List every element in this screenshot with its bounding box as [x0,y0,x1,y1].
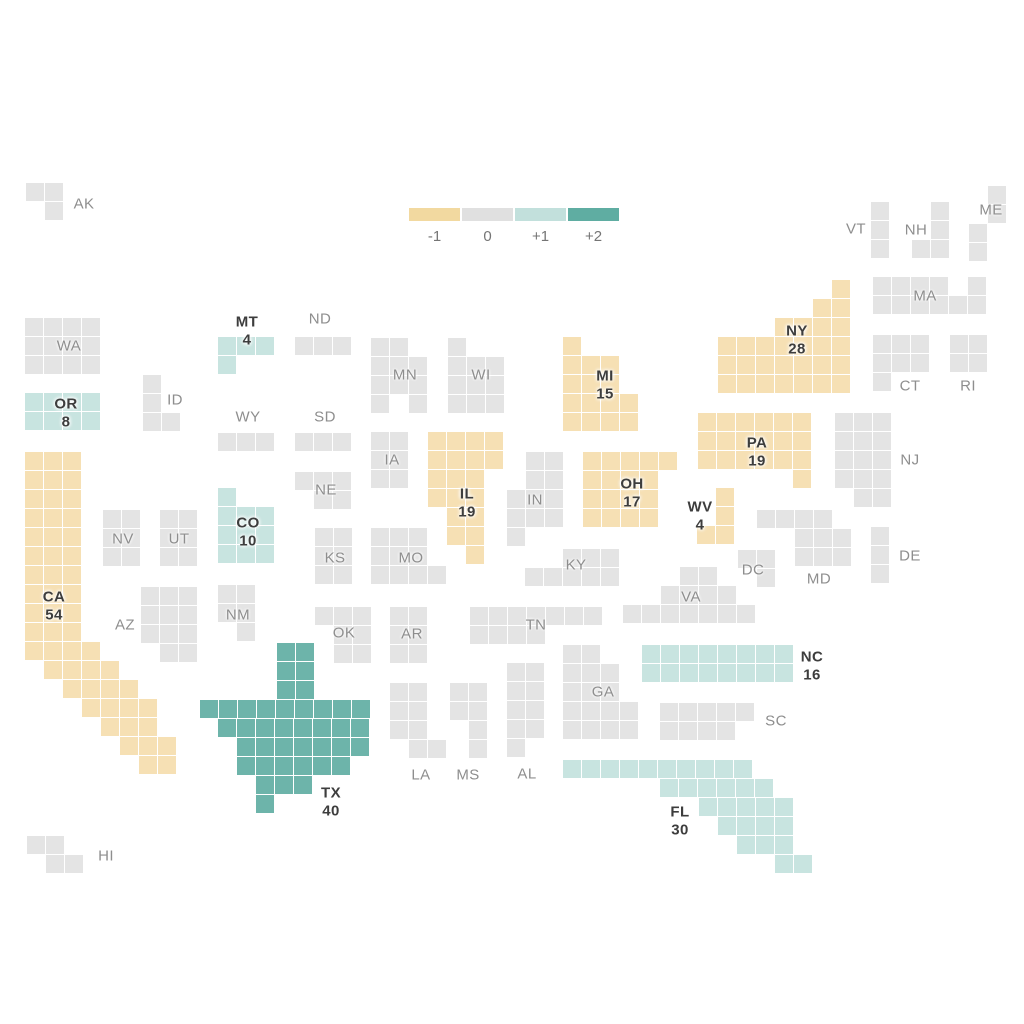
tile-ca[interactable] [44,490,62,508]
tile-oh[interactable] [640,490,658,508]
tile-ny[interactable] [813,337,831,355]
tile-co[interactable] [218,526,236,544]
tile-nc[interactable] [737,664,755,682]
tile-al[interactable] [507,663,525,681]
tile-fl[interactable] [775,836,793,854]
tile-nj[interactable] [873,489,891,507]
tile-id[interactable] [143,394,161,412]
tile-la[interactable] [409,721,427,739]
tile-ny[interactable] [737,375,755,393]
tile-nd[interactable] [295,337,313,355]
tile-in[interactable] [526,471,544,489]
tile-me[interactable] [969,243,987,261]
tile-tx[interactable] [332,738,350,756]
tile-in[interactable] [507,490,525,508]
tile-ny[interactable] [718,375,736,393]
tile-tx[interactable] [313,757,331,775]
tile-sc[interactable] [736,703,754,721]
tile-il[interactable] [466,546,484,564]
tile-ca[interactable] [101,718,119,736]
tile-oh[interactable] [640,452,658,470]
tile-tx[interactable] [332,719,350,737]
tile-wa[interactable] [25,356,43,374]
tile-la[interactable] [428,740,446,758]
tile-nc[interactable] [718,664,736,682]
tile-tn[interactable] [565,607,583,625]
tile-ca[interactable] [120,680,138,698]
tile-az[interactable] [141,606,159,624]
tile-fl[interactable] [696,760,714,778]
tile-co[interactable] [218,507,236,525]
tile-ct[interactable] [892,335,910,353]
tile-ny[interactable] [832,280,850,298]
tile-tx[interactable] [256,795,274,813]
tile-tx[interactable] [277,681,295,699]
tile-nc[interactable] [737,645,755,663]
tile-oh[interactable] [621,452,639,470]
tile-nj[interactable] [835,451,853,469]
tile-hi[interactable] [65,855,83,873]
tile-ca[interactable] [158,756,176,774]
tile-vt[interactable] [871,202,889,220]
tile-tx[interactable] [296,643,314,661]
tile-mn[interactable] [371,338,389,356]
tile-id[interactable] [162,413,180,431]
tile-mn[interactable] [390,338,408,356]
tile-al[interactable] [526,720,544,738]
tile-ny[interactable] [756,356,774,374]
tile-az[interactable] [160,606,178,624]
tile-tx[interactable] [295,700,313,718]
tile-fl[interactable] [756,798,774,816]
tile-nc[interactable] [661,664,679,682]
tile-mo[interactable] [371,528,389,546]
tile-fl[interactable] [620,760,638,778]
tile-wi[interactable] [486,395,504,413]
tile-nc[interactable] [699,664,717,682]
tile-ct[interactable] [911,335,929,353]
tile-mt[interactable] [218,356,236,374]
tile-tx[interactable] [332,757,350,775]
tile-ca[interactable] [44,471,62,489]
tile-az[interactable] [179,606,197,624]
tile-ga[interactable] [620,702,638,720]
tile-in[interactable] [545,509,563,527]
tile-al[interactable] [507,720,525,738]
tile-fl[interactable] [737,798,755,816]
tile-ne[interactable] [295,472,313,490]
tile-ny[interactable] [832,299,850,317]
tile-hi[interactable] [46,855,64,873]
tile-va[interactable] [718,586,736,604]
tile-ca[interactable] [63,585,81,603]
tile-sc[interactable] [679,703,697,721]
tile-ut[interactable] [160,510,178,528]
tile-sd[interactable] [314,433,332,451]
tile-nj[interactable] [873,413,891,431]
tile-fl[interactable] [794,855,812,873]
tile-ca[interactable] [82,699,100,717]
tile-ga[interactable] [601,664,619,682]
tile-pa[interactable] [717,451,735,469]
tile-tx[interactable] [237,738,255,756]
tile-mo[interactable] [409,566,427,584]
tile-ca[interactable] [44,528,62,546]
tile-ma[interactable] [892,296,910,314]
tile-ca[interactable] [63,452,81,470]
tile-ma[interactable] [873,296,891,314]
tile-nv[interactable] [103,510,121,528]
tile-ca[interactable] [139,718,157,736]
tile-md[interactable] [833,529,851,547]
tile-va[interactable] [680,605,698,623]
tile-ca[interactable] [25,490,43,508]
tile-ky[interactable] [525,568,543,586]
tile-tx[interactable] [256,738,274,756]
tile-mt[interactable] [256,337,274,355]
tile-tx[interactable] [333,700,351,718]
tile-nm[interactable] [218,585,236,603]
tile-nj[interactable] [854,451,872,469]
tile-ca[interactable] [120,737,138,755]
tile-il[interactable] [428,451,446,469]
tile-il[interactable] [466,432,484,450]
tile-ny[interactable] [813,356,831,374]
tile-nh[interactable] [931,221,949,239]
tile-co[interactable] [256,545,274,563]
tile-il[interactable] [466,451,484,469]
tile-il[interactable] [466,527,484,545]
tile-al[interactable] [507,701,525,719]
tile-ny[interactable] [718,337,736,355]
tile-ia[interactable] [371,432,389,450]
tile-ut[interactable] [160,548,178,566]
tile-ca[interactable] [25,585,43,603]
tile-wa[interactable] [63,318,81,336]
tile-sc[interactable] [698,703,716,721]
tile-md[interactable] [795,548,813,566]
tile-or[interactable] [25,412,43,430]
tile-ca[interactable] [101,680,119,698]
tile-oh[interactable] [583,509,601,527]
tile-tx[interactable] [237,719,255,737]
tile-fl[interactable] [715,760,733,778]
tile-pa[interactable] [698,451,716,469]
tile-nd[interactable] [333,337,351,355]
tile-ga[interactable] [563,683,581,701]
tile-tn[interactable] [470,607,488,625]
tile-ks[interactable] [315,566,333,584]
tile-fl[interactable] [699,798,717,816]
tile-nj[interactable] [854,432,872,450]
tile-ks[interactable] [334,566,352,584]
tile-vt[interactable] [871,240,889,258]
tile-nc[interactable] [775,664,793,682]
tile-mo[interactable] [390,528,408,546]
tile-nv[interactable] [103,548,121,566]
tile-ca[interactable] [25,623,43,641]
tile-md[interactable] [814,529,832,547]
tile-ar[interactable] [409,645,427,663]
tile-fl[interactable] [582,760,600,778]
tile-tx[interactable] [256,776,274,794]
tile-de[interactable] [871,565,889,583]
tile-ca[interactable] [25,547,43,565]
tile-ca[interactable] [63,661,81,679]
tile-ga[interactable] [582,702,600,720]
tile-nh[interactable] [912,240,930,258]
tile-nc[interactable] [718,645,736,663]
tile-ca[interactable] [63,547,81,565]
tile-ut[interactable] [179,510,197,528]
tile-nm[interactable] [237,623,255,641]
tile-mo[interactable] [409,528,427,546]
tile-ma[interactable] [892,277,910,295]
tile-fl[interactable] [756,836,774,854]
tile-tx[interactable] [313,719,331,737]
tile-al[interactable] [507,682,525,700]
tile-fl[interactable] [755,779,773,797]
tile-tn[interactable] [508,607,526,625]
tile-nj[interactable] [835,432,853,450]
tile-ar[interactable] [409,607,427,625]
tile-tn[interactable] [470,626,488,644]
tile-tn[interactable] [508,626,526,644]
tile-ak[interactable] [26,183,44,201]
tile-tx[interactable] [257,700,275,718]
tile-pa[interactable] [793,413,811,431]
tile-ca[interactable] [44,623,62,641]
tile-sc[interactable] [660,703,678,721]
tile-ct[interactable] [873,335,891,353]
tile-ok[interactable] [315,607,333,625]
tile-fl[interactable] [775,855,793,873]
tile-wa[interactable] [82,318,100,336]
tile-ms[interactable] [469,740,487,758]
tile-fl[interactable] [660,779,678,797]
tile-ca[interactable] [25,471,43,489]
tile-ny[interactable] [794,356,812,374]
tile-ny[interactable] [756,375,774,393]
tile-oh[interactable] [640,509,658,527]
tile-mo[interactable] [371,547,389,565]
tile-az[interactable] [160,587,178,605]
tile-ri[interactable] [950,335,968,353]
tile-ca[interactable] [63,490,81,508]
tile-va[interactable] [642,605,660,623]
tile-mn[interactable] [409,395,427,413]
tile-mn[interactable] [371,376,389,394]
tile-ky[interactable] [601,568,619,586]
tile-ca[interactable] [63,528,81,546]
tile-tx[interactable] [277,662,295,680]
tile-tx[interactable] [275,719,293,737]
tile-ca[interactable] [25,604,43,622]
tile-oh[interactable] [621,509,639,527]
tile-va[interactable] [718,605,736,623]
tile-ny[interactable] [813,299,831,317]
tile-co[interactable] [218,488,236,506]
tile-ms[interactable] [450,683,468,701]
tile-nj[interactable] [873,451,891,469]
tile-fl[interactable] [718,798,736,816]
tile-tx[interactable] [275,757,293,775]
tile-tx[interactable] [294,719,312,737]
tile-md[interactable] [814,548,832,566]
tile-co[interactable] [218,545,236,563]
tile-sc[interactable] [679,722,697,740]
tile-tx[interactable] [275,776,293,794]
tile-nc[interactable] [680,664,698,682]
tile-ny[interactable] [737,337,755,355]
tile-ok[interactable] [353,607,371,625]
tile-ca[interactable] [25,509,43,527]
tile-ma[interactable] [968,277,986,295]
tile-tx[interactable] [275,738,293,756]
tile-md[interactable] [814,510,832,528]
tile-il[interactable] [447,451,465,469]
tile-ca[interactable] [63,509,81,527]
tile-ny[interactable] [832,375,850,393]
tile-ga[interactable] [563,702,581,720]
tile-tx[interactable] [237,757,255,775]
tile-ok[interactable] [334,607,352,625]
tile-fl[interactable] [775,817,793,835]
tile-wi[interactable] [467,395,485,413]
tile-in[interactable] [526,452,544,470]
tile-pa[interactable] [774,413,792,431]
tile-tx[interactable] [200,700,218,718]
tile-nc[interactable] [699,645,717,663]
tile-va[interactable] [680,567,698,585]
tile-ny[interactable] [832,318,850,336]
tile-va[interactable] [699,567,717,585]
tile-pa[interactable] [717,413,735,431]
tile-id[interactable] [143,375,161,393]
tile-va[interactable] [661,605,679,623]
tile-nj[interactable] [835,470,853,488]
tile-tx[interactable] [276,700,294,718]
tile-oh[interactable] [602,471,620,489]
tile-fl[interactable] [718,817,736,835]
tile-wa[interactable] [25,318,43,336]
tile-il[interactable] [447,527,465,545]
tile-ut[interactable] [179,548,197,566]
tile-ga[interactable] [563,721,581,739]
tile-az[interactable] [160,644,178,662]
tile-wy[interactable] [218,433,236,451]
tile-pa[interactable] [698,432,716,450]
tile-mo[interactable] [371,566,389,584]
tile-ny[interactable] [775,375,793,393]
tile-fl[interactable] [775,798,793,816]
tile-mi[interactable] [563,337,581,355]
tile-tx[interactable] [256,719,274,737]
tile-mi[interactable] [601,413,619,431]
tile-tx[interactable] [294,738,312,756]
tile-wa[interactable] [82,356,100,374]
tile-nc[interactable] [642,664,660,682]
tile-ga[interactable] [582,721,600,739]
tile-tx[interactable] [277,643,295,661]
tile-tn[interactable] [489,626,507,644]
tile-ky[interactable] [601,549,619,567]
tile-la[interactable] [390,702,408,720]
tile-ca[interactable] [139,699,157,717]
tile-ca[interactable] [101,699,119,717]
tile-tx[interactable] [296,662,314,680]
tile-in[interactable] [507,528,525,546]
tile-ri[interactable] [950,354,968,372]
tile-wi[interactable] [448,376,466,394]
tile-ct[interactable] [873,373,891,391]
tile-mn[interactable] [371,357,389,375]
tile-pa[interactable] [698,413,716,431]
tile-wa[interactable] [25,337,43,355]
tile-wi[interactable] [448,338,466,356]
tile-ga[interactable] [563,645,581,663]
tile-ca[interactable] [63,471,81,489]
tile-ny[interactable] [756,337,774,355]
tile-sc[interactable] [717,722,735,740]
tile-ct[interactable] [873,354,891,372]
tile-sd[interactable] [333,433,351,451]
tile-wa[interactable] [82,337,100,355]
tile-fl[interactable] [698,779,716,797]
tile-ga[interactable] [601,721,619,739]
tile-ca[interactable] [44,661,62,679]
tile-nc[interactable] [756,664,774,682]
tile-md[interactable] [833,548,851,566]
tile-ca[interactable] [63,566,81,584]
tile-ca[interactable] [139,737,157,755]
tile-tx[interactable] [219,700,237,718]
tile-fl[interactable] [734,760,752,778]
tile-pa[interactable] [755,413,773,431]
tile-id[interactable] [143,413,161,431]
tile-ok[interactable] [353,626,371,644]
tile-or[interactable] [82,393,100,411]
tile-az[interactable] [141,625,159,643]
tile-mo[interactable] [428,566,446,584]
tile-wa[interactable] [63,356,81,374]
tile-wi[interactable] [448,395,466,413]
tile-md[interactable] [795,529,813,547]
tile-wy[interactable] [237,433,255,451]
tile-nv[interactable] [122,548,140,566]
tile-wi[interactable] [448,357,466,375]
tile-ca[interactable] [25,528,43,546]
tile-ca[interactable] [44,452,62,470]
tile-in[interactable] [526,509,544,527]
tile-ak[interactable] [45,202,63,220]
tile-de[interactable] [871,527,889,545]
tile-ca[interactable] [139,756,157,774]
tile-tx[interactable] [313,738,331,756]
tile-ma[interactable] [968,296,986,314]
tile-fl[interactable] [737,836,755,854]
tile-de[interactable] [871,546,889,564]
tile-hi[interactable] [27,836,45,854]
tile-il[interactable] [485,451,503,469]
tile-sc[interactable] [698,722,716,740]
tile-fl[interactable] [736,779,754,797]
tile-wa[interactable] [44,356,62,374]
tile-fl[interactable] [737,817,755,835]
tile-tx[interactable] [314,700,332,718]
tile-ny[interactable] [775,356,793,374]
tile-nj[interactable] [854,413,872,431]
